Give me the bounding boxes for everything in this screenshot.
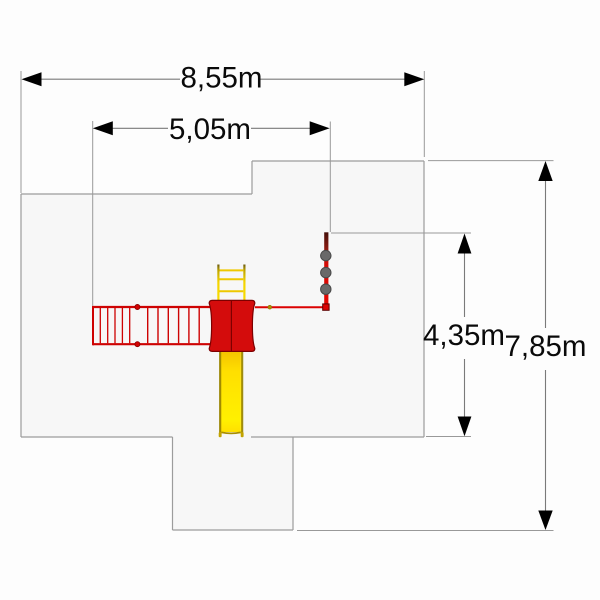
svg-text:4,35m: 4,35m — [423, 319, 505, 352]
svg-text:5,05m: 5,05m — [169, 113, 251, 146]
svg-text:7,85m: 7,85m — [505, 330, 587, 363]
svg-text:8,55m: 8,55m — [181, 62, 263, 95]
